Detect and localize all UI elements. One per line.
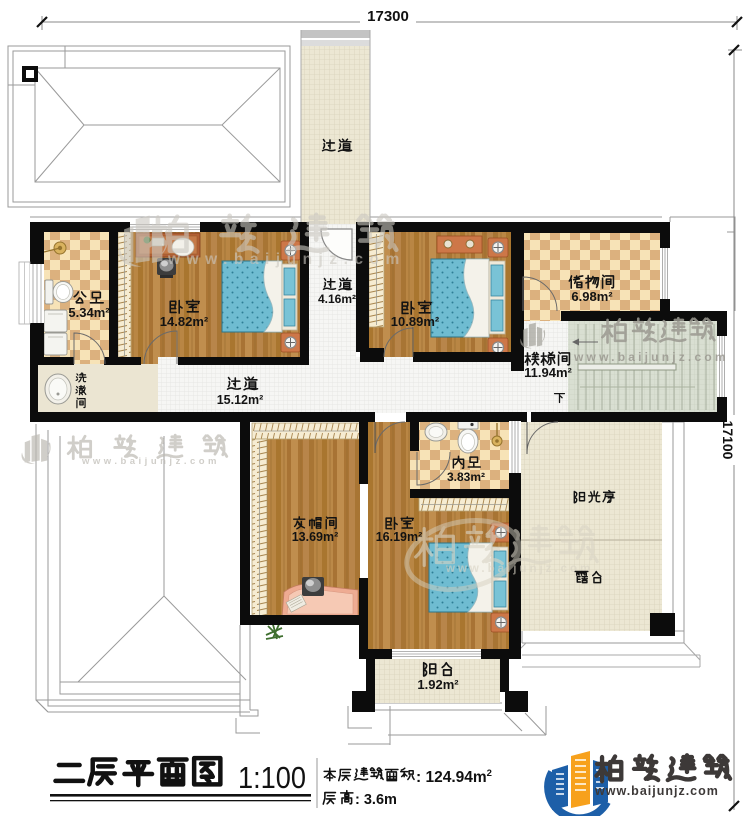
svg-text:1:100: 1:100	[238, 760, 306, 795]
svg-text:6.98m²: 6.98m²	[571, 289, 613, 304]
svg-text:: 124.94m2: : 124.94m2	[416, 768, 492, 786]
svg-text:: 3.6m: : 3.6m	[355, 792, 397, 808]
svg-text:10.89m²: 10.89m²	[391, 314, 440, 329]
svg-text:3.83m²: 3.83m²	[447, 470, 485, 484]
svg-text:15.12m²: 15.12m²	[217, 393, 264, 407]
svg-text:www.baijunjz.com: www.baijunjz.com	[594, 784, 719, 798]
svg-text:17300: 17300	[367, 8, 409, 25]
svg-text:4.16m²: 4.16m²	[318, 292, 356, 306]
svg-text:www.baijunjz.com: www.baijunjz.com	[445, 563, 593, 575]
svg-text:17100: 17100	[720, 421, 736, 460]
svg-text:www.baijunjz.com: www.baijunjz.com	[573, 350, 729, 364]
svg-text:www.baijunjz.com: www.baijunjz.com	[167, 251, 406, 268]
svg-text:www.baijunjz.com: www.baijunjz.com	[81, 456, 220, 467]
svg-text:16.19m²: 16.19m²	[376, 530, 423, 544]
svg-text:1.92m²: 1.92m²	[417, 677, 459, 692]
svg-text:14.82m²: 14.82m²	[160, 314, 209, 329]
svg-text:11.94m²: 11.94m²	[524, 365, 572, 380]
svg-text:5.34m²: 5.34m²	[68, 305, 110, 320]
svg-text:13.69m²: 13.69m²	[292, 530, 339, 544]
